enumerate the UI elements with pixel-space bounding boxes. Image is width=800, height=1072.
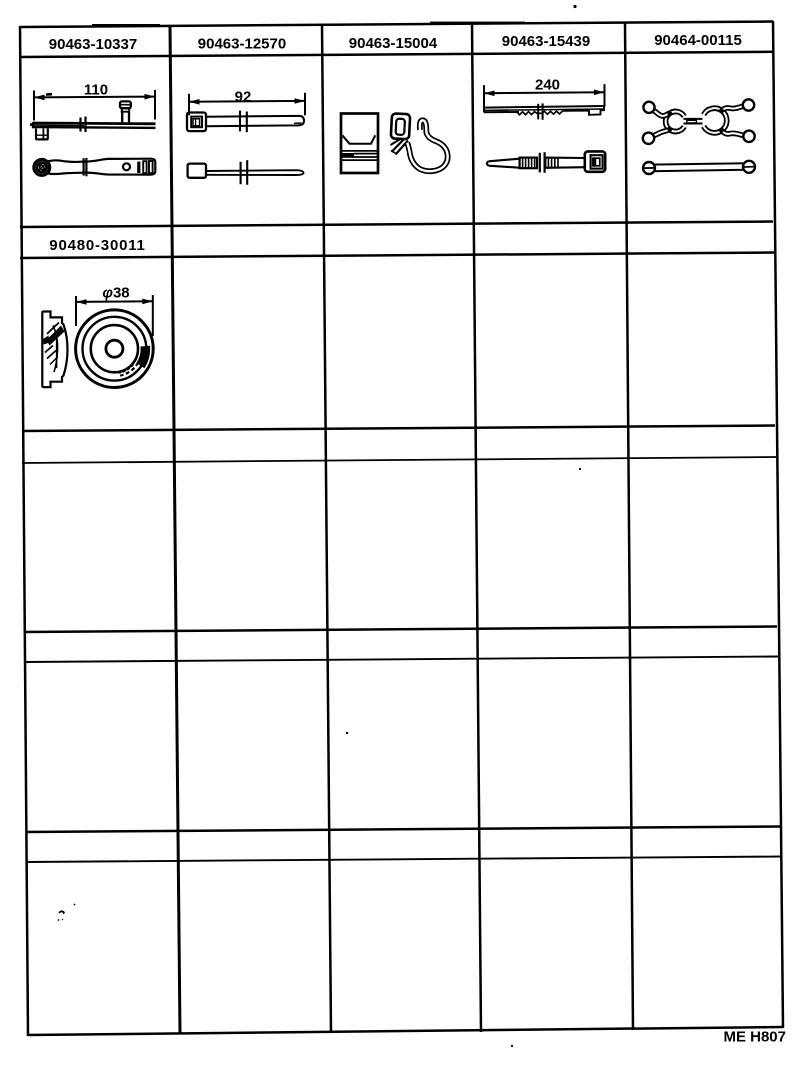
svg-text:90463-10337: 90463-10337 xyxy=(49,36,137,53)
svg-text:90463-15004: 90463-15004 xyxy=(349,35,438,52)
svg-text:90463-12570: 90463-12570 xyxy=(198,36,286,53)
svg-text:92: 92 xyxy=(235,89,252,106)
svg-text:ME H807: ME H807 xyxy=(723,1029,786,1046)
svg-text:90480-30011: 90480-30011 xyxy=(49,237,145,254)
svg-text:240: 240 xyxy=(535,77,560,94)
svg-text:90464-00115: 90464-00115 xyxy=(654,32,742,49)
svg-text:110: 110 xyxy=(84,82,108,99)
svg-text:φ38: φ38 xyxy=(102,285,129,302)
svg-text:90463-15439: 90463-15439 xyxy=(502,33,590,50)
